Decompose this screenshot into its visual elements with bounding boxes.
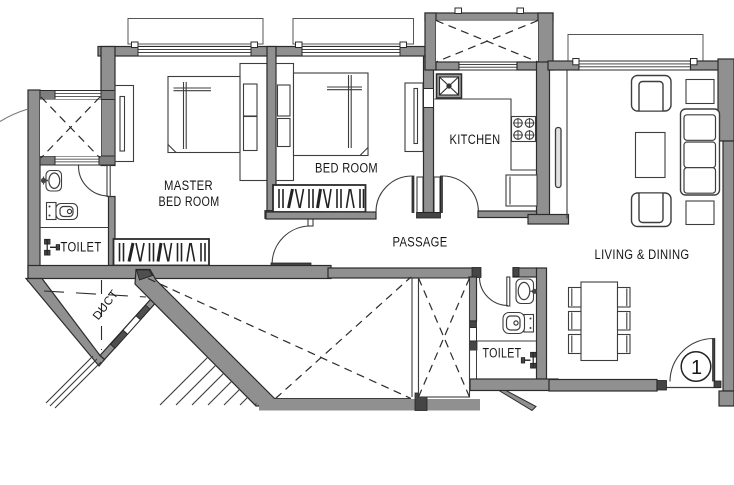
svg-text:TOILET: TOILET [483, 346, 522, 361]
svg-text:1: 1 [691, 357, 702, 379]
svg-text:PASSAGE: PASSAGE [393, 235, 448, 250]
svg-text:TOILET: TOILET [61, 240, 102, 255]
svg-text:LIVING & DINING: LIVING & DINING [595, 247, 690, 262]
svg-text:BED ROOM: BED ROOM [159, 194, 220, 209]
svg-text:BED ROOM: BED ROOM [315, 161, 378, 176]
svg-text:KITCHEN: KITCHEN [450, 132, 501, 147]
svg-text:MASTER: MASTER [164, 178, 213, 193]
